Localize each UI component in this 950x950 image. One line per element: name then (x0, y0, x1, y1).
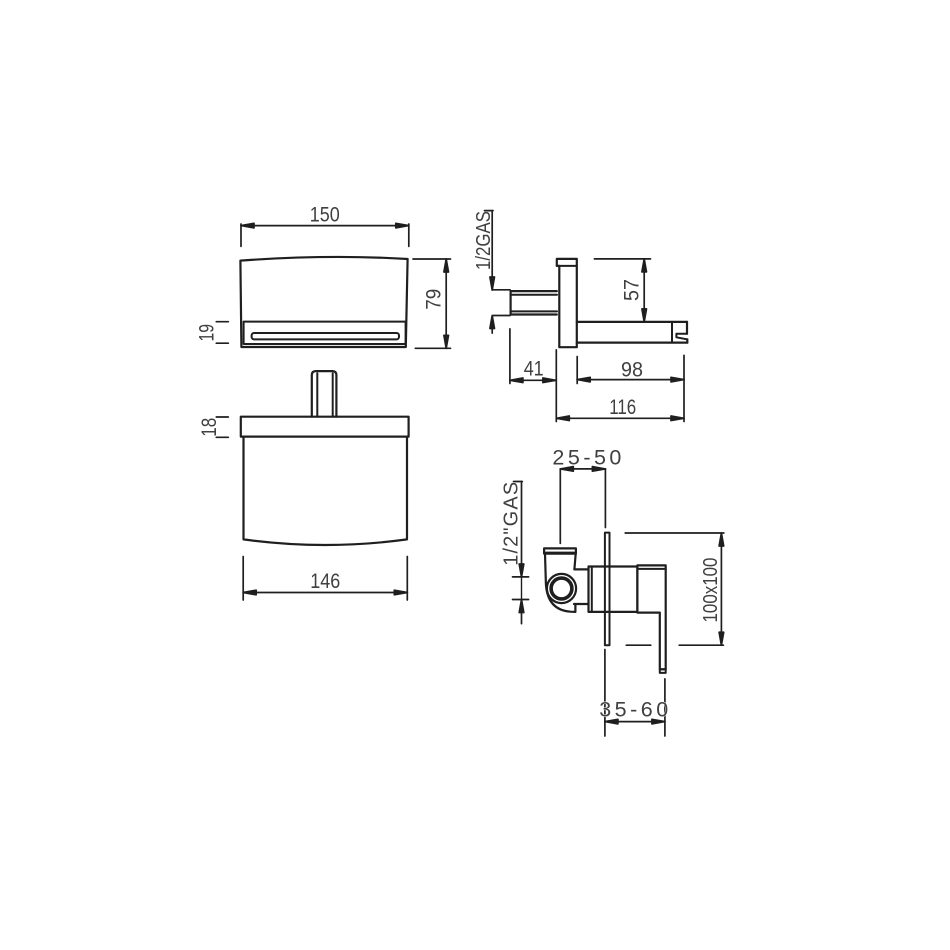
svg-text:19: 19 (195, 324, 219, 342)
svg-text:41: 41 (524, 356, 544, 380)
svg-text:25-50: 25-50 (552, 446, 621, 470)
svg-text:98: 98 (621, 358, 643, 382)
svg-text:146: 146 (310, 569, 340, 593)
svg-text:1/2"GAS: 1/2"GAS (501, 482, 523, 566)
svg-text:1/2GAS: 1/2GAS (473, 211, 495, 270)
svg-text:150: 150 (310, 203, 340, 227)
svg-text:35-60: 35-60 (599, 697, 668, 721)
svg-text:79: 79 (422, 289, 446, 310)
svg-text:18: 18 (197, 418, 221, 437)
svg-text:100x100: 100x100 (700, 558, 722, 623)
svg-text:116: 116 (609, 395, 636, 419)
svg-text:57: 57 (620, 279, 644, 301)
